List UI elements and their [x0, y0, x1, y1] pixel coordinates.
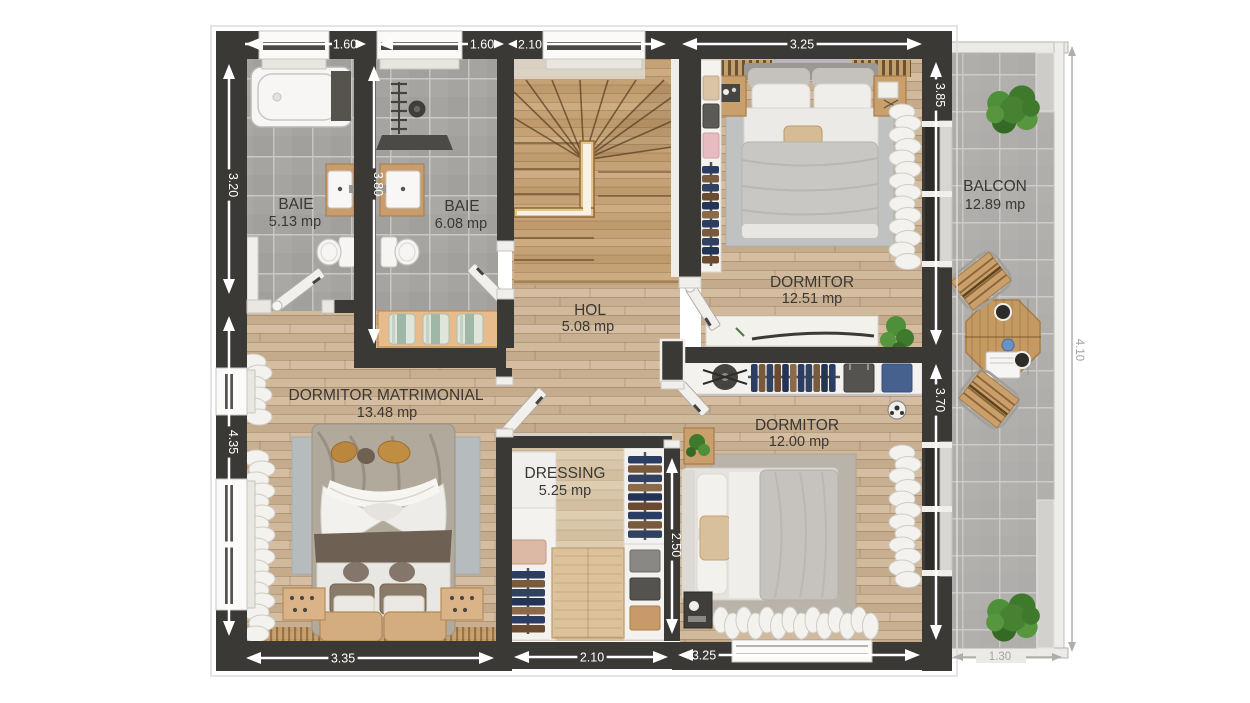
svg-text:5.08 mp: 5.08 mp [562, 319, 614, 335]
svg-text:4.10: 4.10 [1073, 339, 1085, 361]
svg-text:DORMITOR: DORMITOR [755, 417, 839, 434]
svg-text:1.30: 1.30 [989, 651, 1011, 663]
svg-text:DORMITOR: DORMITOR [770, 274, 854, 291]
svg-text:DORMITOR MATRIMONIAL: DORMITOR MATRIMONIAL [289, 387, 484, 404]
svg-text:2.10: 2.10 [580, 651, 604, 665]
svg-text:4.35: 4.35 [226, 430, 240, 454]
svg-text:BAIE: BAIE [278, 196, 313, 213]
svg-text:12.51 mp: 12.51 mp [782, 291, 842, 307]
svg-text:BAIE: BAIE [444, 198, 479, 215]
svg-text:3.25: 3.25 [692, 649, 716, 663]
svg-text:3.80: 3.80 [371, 172, 385, 196]
svg-text:1.60: 1.60 [333, 37, 357, 51]
svg-text:6.08 mp: 6.08 mp [435, 216, 487, 232]
svg-text:13.48 mp: 13.48 mp [357, 405, 417, 421]
svg-text:3.35: 3.35 [331, 652, 355, 666]
svg-text:2.10: 2.10 [518, 37, 542, 51]
svg-text:1.60: 1.60 [470, 37, 494, 51]
svg-text:3.20: 3.20 [226, 173, 240, 197]
svg-text:3.85: 3.85 [933, 83, 947, 107]
svg-text:5.13 mp: 5.13 mp [269, 214, 321, 230]
svg-text:12.89 mp: 12.89 mp [965, 197, 1025, 213]
svg-text:12.00 mp: 12.00 mp [769, 434, 829, 450]
svg-text:HOL: HOL [574, 302, 606, 319]
svg-text:3.25: 3.25 [790, 38, 814, 52]
svg-text:DRESSING: DRESSING [525, 465, 606, 482]
svg-text:3.70: 3.70 [933, 388, 947, 412]
svg-text:2.50: 2.50 [669, 533, 683, 557]
svg-text:5.25 mp: 5.25 mp [539, 483, 591, 499]
svg-text:BALCON: BALCON [963, 178, 1027, 195]
